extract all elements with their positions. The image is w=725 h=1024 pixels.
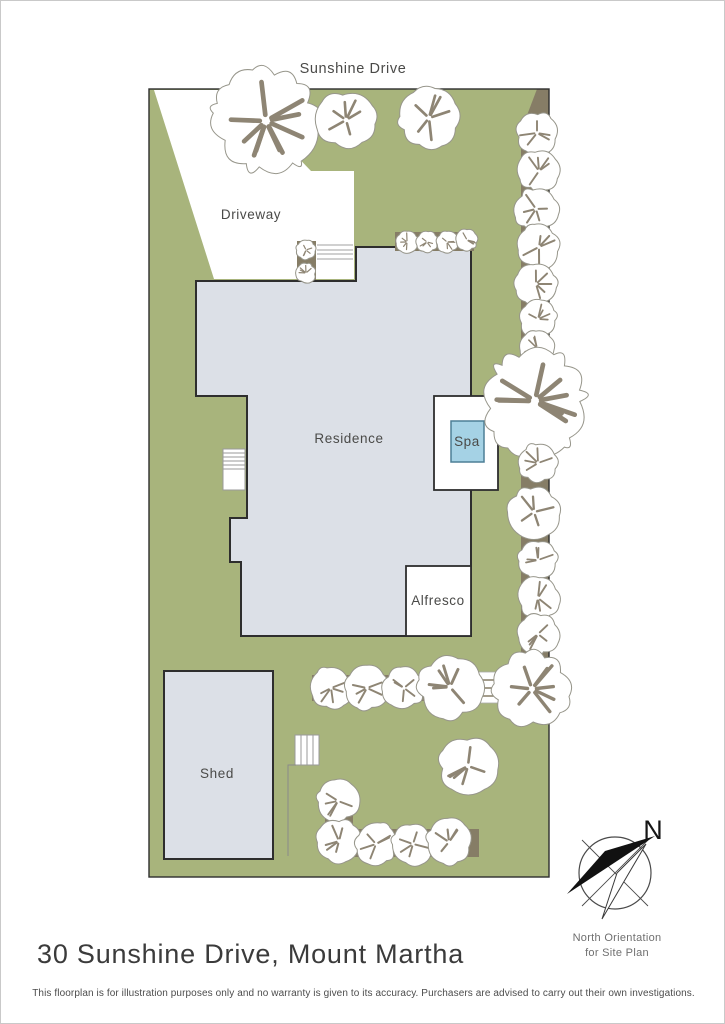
north-caption-line1: North Orientation [541,931,693,946]
north-orientation-caption: North Orientation for Site Plan [541,931,693,961]
compass: N [567,815,663,919]
page-title: 30 Sunshine Drive, Mount Martha [37,939,464,970]
street-label: Sunshine Drive [300,61,407,77]
site-plan-page: Sunshine Drive Driveway Residence Spa Al… [0,0,725,1024]
tree-icon [436,231,459,253]
tree-icon [416,231,438,253]
tree-icon [315,93,377,148]
tree-icon [517,151,560,193]
tree-icon [516,113,557,155]
site-plan: Sunshine Drive Driveway Residence Spa Al… [1,1,725,1024]
alfresco-label: Alfresco [411,593,465,608]
disclaimer-text: This floorplan is for illustration purpo… [1,988,725,999]
shed-building [164,671,273,859]
north-caption-line2: for Site Plan [541,946,693,961]
residence-stairs [223,449,245,490]
spa-label: Spa [454,434,480,449]
driveway-label: Driveway [221,207,281,222]
shed-label: Shed [200,766,234,781]
residence-label: Residence [314,431,383,446]
tree-icon [518,577,561,620]
tree-icon [438,738,498,795]
tree-icon [456,229,478,251]
tree-icon [296,240,316,260]
shed-steps [295,735,319,765]
compass-north-letter: N [643,815,663,845]
tree-icon [517,614,560,657]
tree-icon [396,231,419,253]
